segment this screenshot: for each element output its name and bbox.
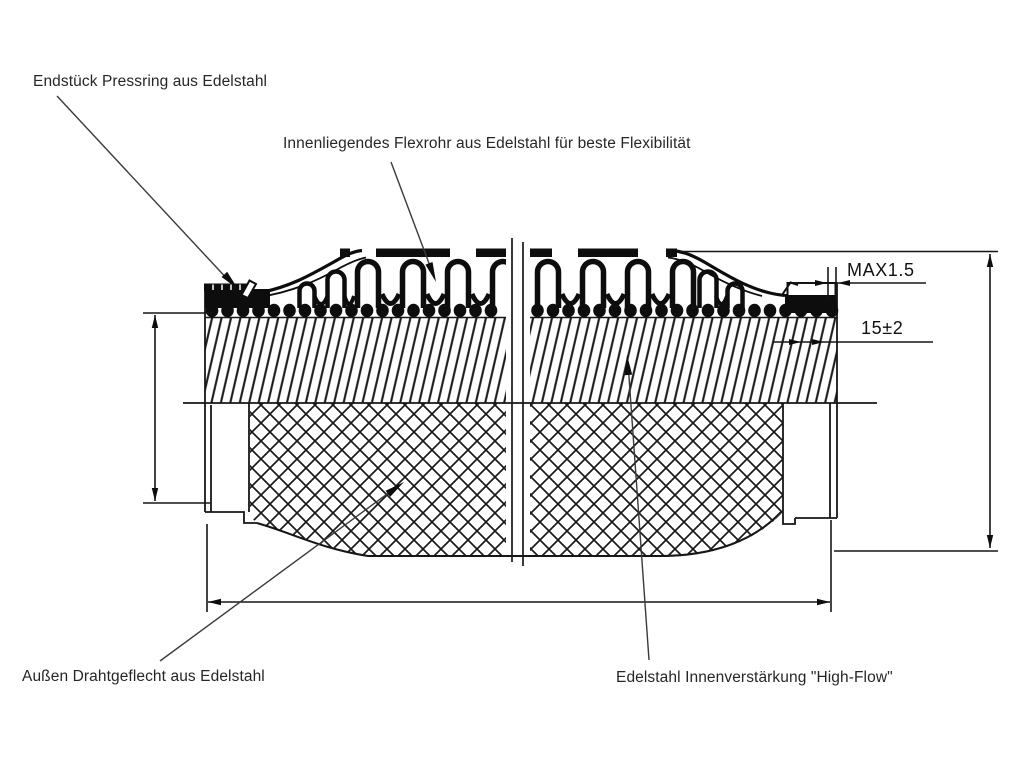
bellows-ramp-loop bbox=[328, 272, 345, 309]
root-dot bbox=[361, 304, 374, 318]
root-dot bbox=[671, 304, 684, 318]
technical-drawing-canvas: Endstück Pressring aus Edelstahl Innenli… bbox=[0, 0, 1024, 768]
dim-arrow-right-top bbox=[987, 254, 993, 267]
root-dot bbox=[330, 304, 343, 318]
root-dot bbox=[733, 304, 746, 318]
cover-band-segment bbox=[666, 249, 677, 258]
bellows-loop bbox=[583, 262, 604, 309]
dim-arrow-right-bottom bbox=[987, 535, 993, 548]
dim-arrow-left-top bbox=[152, 315, 158, 328]
root-dot bbox=[609, 304, 622, 318]
root-dot bbox=[407, 304, 420, 318]
bellows-ramp-loop bbox=[700, 272, 717, 309]
root-dot bbox=[686, 304, 699, 318]
flex-pipe-diagram bbox=[0, 0, 1024, 768]
bellows-connector bbox=[562, 294, 579, 304]
root-dot bbox=[345, 304, 358, 318]
bellows-loop bbox=[628, 262, 649, 309]
bellows-loop bbox=[448, 262, 469, 309]
root-dot bbox=[717, 304, 730, 318]
label-innenverstaerkung: Edelstahl Innenverstärkung "High-Flow" bbox=[616, 669, 893, 687]
bellows-connector bbox=[427, 294, 444, 304]
cover-band-segment bbox=[476, 249, 506, 258]
cover-band-segment bbox=[340, 249, 350, 258]
label-pressring: Endstück Pressring aus Edelstahl bbox=[33, 73, 267, 91]
dim-arrow-bottom-right bbox=[817, 599, 830, 605]
root-dot bbox=[562, 304, 575, 318]
root-dot bbox=[655, 304, 668, 318]
dimension-text-max15: MAX1.5 bbox=[847, 260, 915, 281]
root-dot bbox=[547, 304, 560, 318]
root-dot bbox=[624, 304, 637, 318]
dimension-text-15pm2: 15±2 bbox=[861, 318, 903, 339]
label-drahtgeflecht: Außen Drahtgeflecht aus Edelstahl bbox=[22, 668, 265, 686]
root-dot bbox=[283, 304, 296, 318]
bellows-connector bbox=[382, 294, 399, 304]
bellows-ramp-connector bbox=[716, 296, 727, 304]
press-ring-left bbox=[204, 281, 270, 309]
root-dot bbox=[485, 304, 498, 318]
root-dot bbox=[423, 304, 436, 318]
cover-band-segment bbox=[530, 249, 552, 258]
label-flexrohr: Innenliegendes Flexrohr aus Edelstahl fü… bbox=[283, 135, 691, 153]
dim-arrow-bottom-left bbox=[208, 599, 221, 605]
root-dot bbox=[299, 304, 312, 318]
root-dot bbox=[392, 304, 405, 318]
dim-arrow-left-bottom bbox=[152, 488, 158, 501]
bellows-loop bbox=[538, 262, 559, 309]
root-dot bbox=[578, 304, 591, 318]
root-dot bbox=[314, 304, 327, 318]
root-dot bbox=[376, 304, 389, 318]
root-dot bbox=[748, 304, 761, 318]
cover-band-segment bbox=[578, 249, 638, 258]
bellows-loop bbox=[358, 262, 379, 309]
leader-arrow-flexrohr bbox=[425, 262, 439, 283]
section-break-gap bbox=[506, 234, 530, 568]
bellows-loop bbox=[403, 262, 424, 309]
root-dot bbox=[454, 304, 467, 318]
root-dot bbox=[640, 304, 653, 318]
root-dot bbox=[764, 304, 777, 318]
root-dot bbox=[469, 304, 482, 318]
bellows-ramp-connector bbox=[315, 296, 328, 304]
root-dot bbox=[702, 304, 715, 318]
root-dot bbox=[531, 304, 544, 318]
root-dot bbox=[593, 304, 606, 318]
root-dot bbox=[438, 304, 451, 318]
bellows-connector bbox=[607, 294, 624, 304]
bellows-connector bbox=[472, 294, 489, 304]
bellows-connector bbox=[652, 294, 669, 304]
bellows-ramp-connector bbox=[345, 296, 355, 304]
bellows-loop bbox=[673, 262, 694, 309]
cover-band-segment bbox=[376, 249, 450, 258]
